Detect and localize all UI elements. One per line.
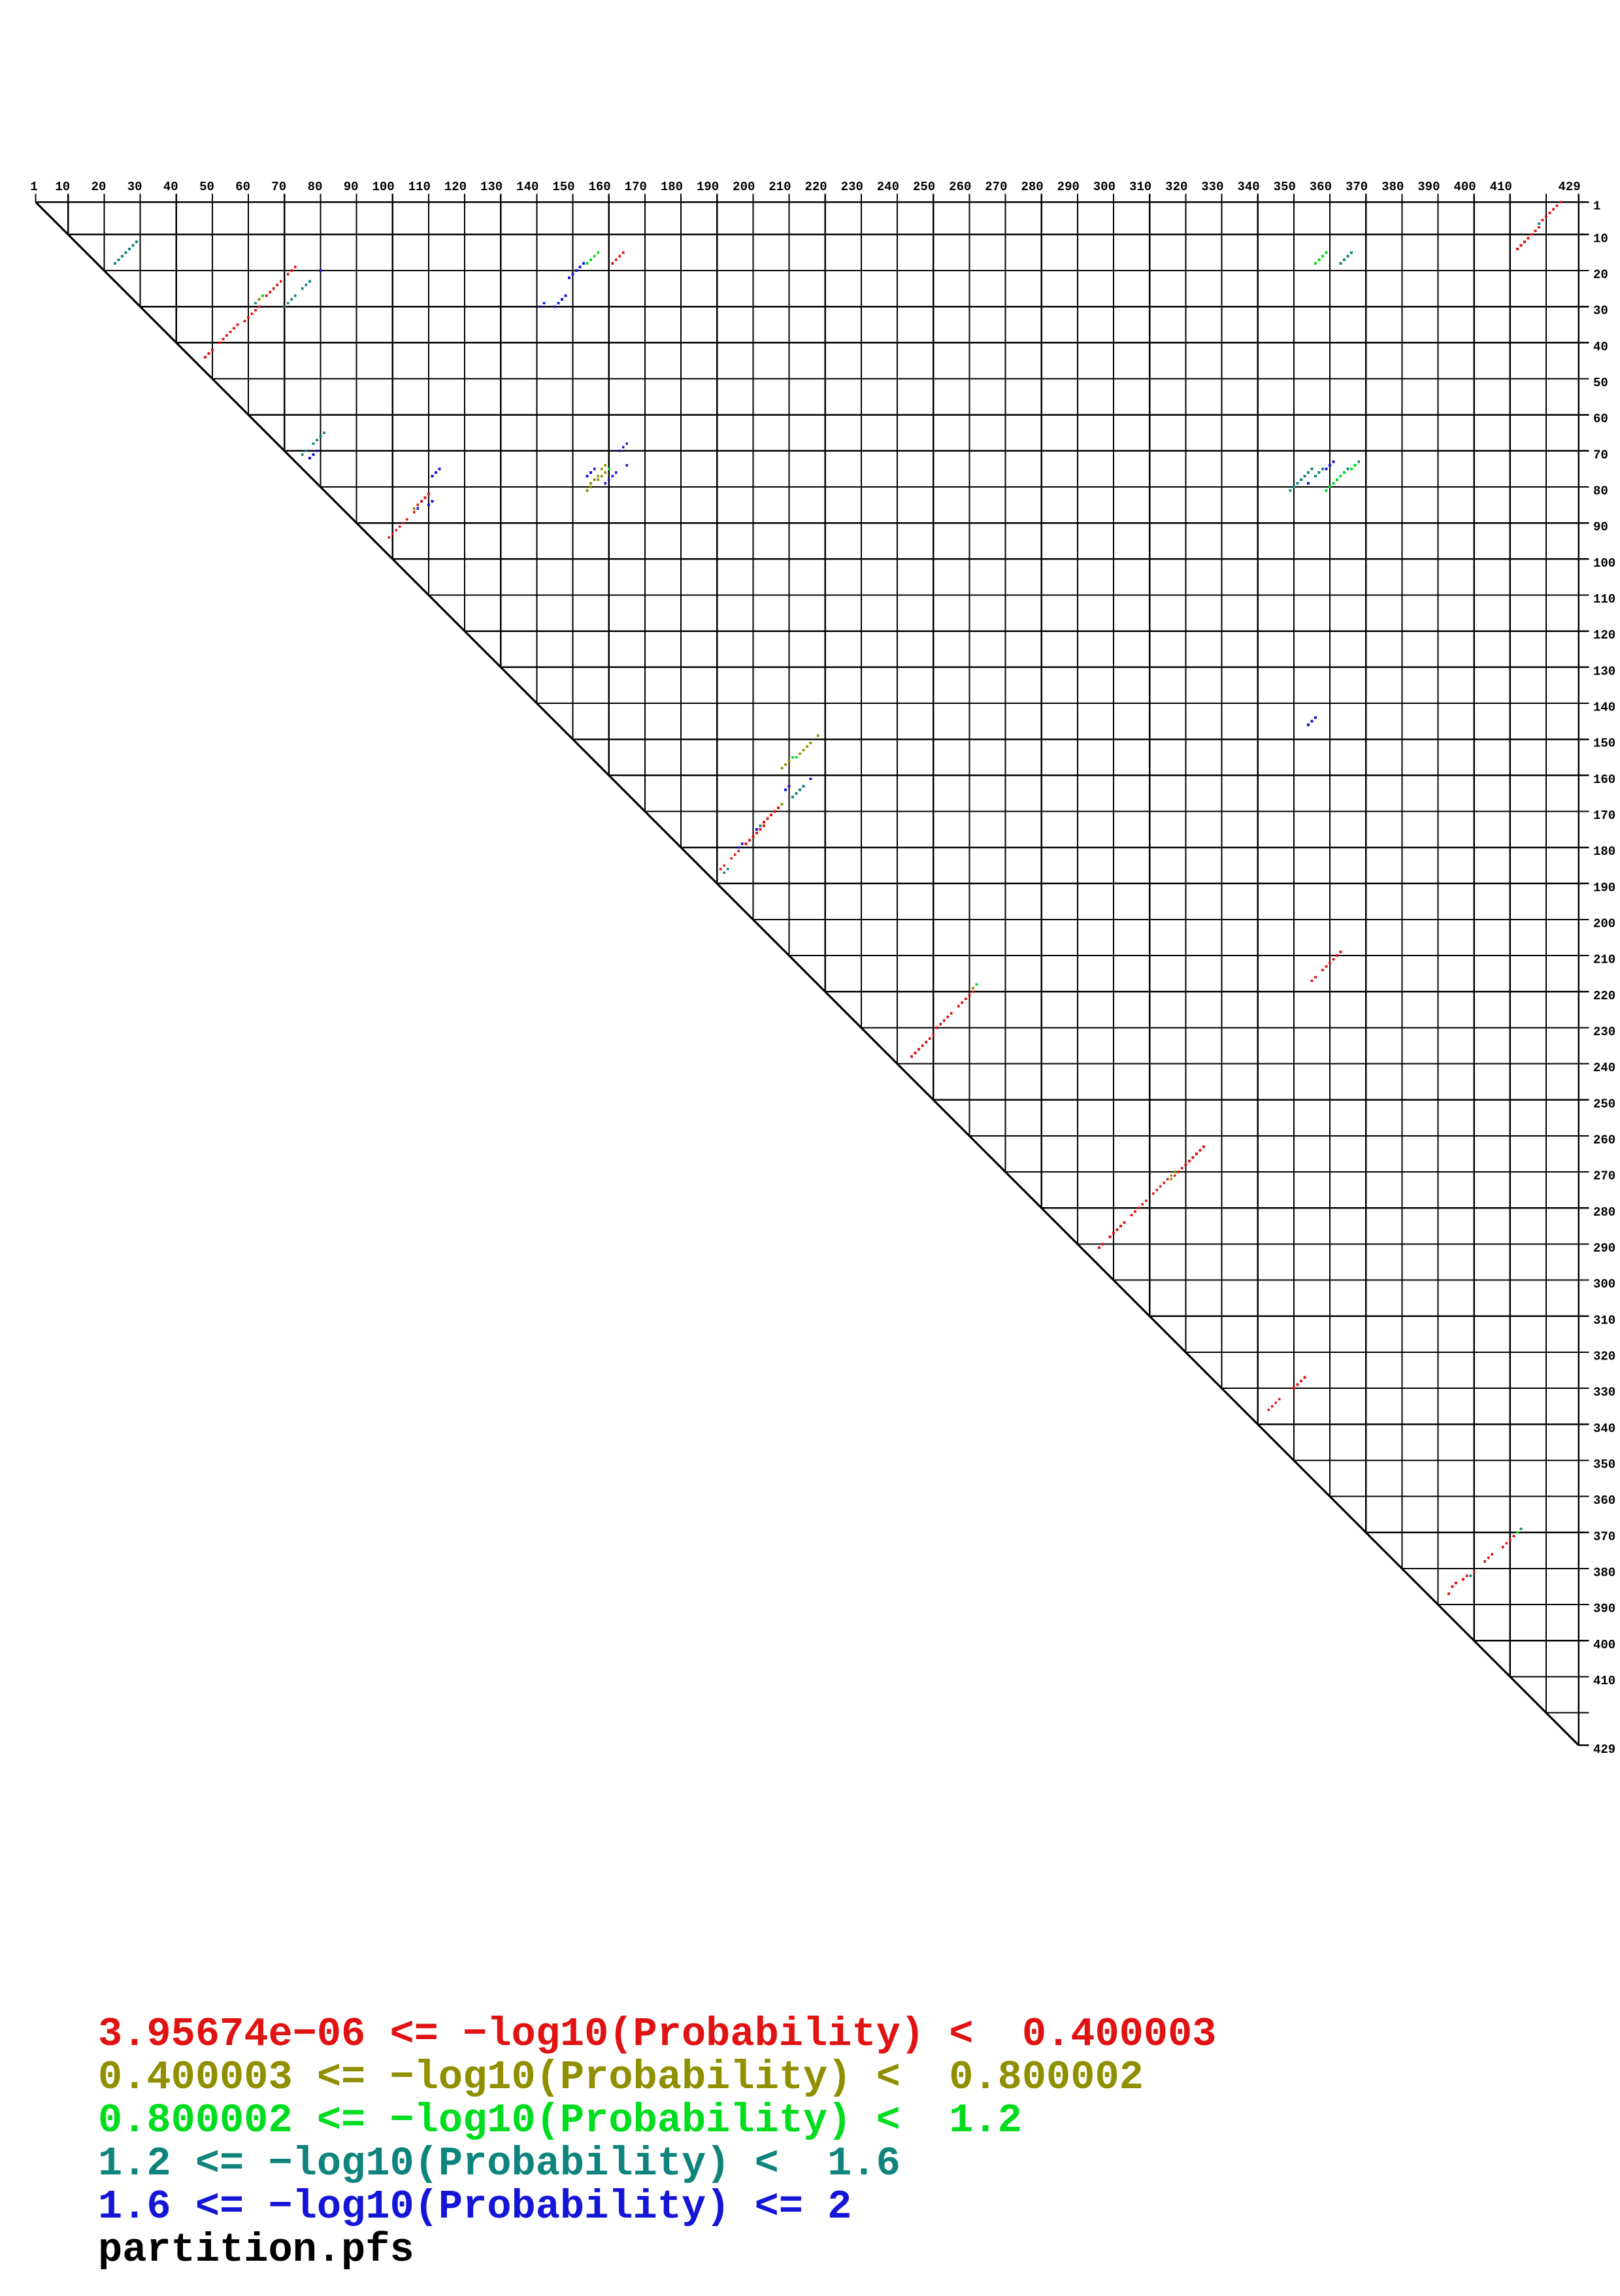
svg-text:60: 60 <box>235 180 250 194</box>
svg-text:429: 429 <box>1593 1742 1615 1757</box>
svg-text:170: 170 <box>625 180 647 194</box>
svg-text:100: 100 <box>372 180 394 194</box>
svg-text:220: 220 <box>1593 989 1615 1003</box>
svg-text:130: 130 <box>1593 664 1615 678</box>
svg-text:200: 200 <box>733 180 755 194</box>
svg-text:240: 240 <box>1593 1061 1615 1075</box>
svg-text:390: 390 <box>1593 1602 1615 1616</box>
svg-text:310: 310 <box>1129 180 1151 194</box>
svg-text:240: 240 <box>877 180 899 194</box>
svg-text:330: 330 <box>1593 1386 1615 1400</box>
svg-text:340: 340 <box>1593 1422 1615 1436</box>
svg-text:210: 210 <box>1593 953 1615 967</box>
svg-text:60: 60 <box>1593 412 1608 426</box>
svg-text:210: 210 <box>769 180 791 194</box>
svg-text:140: 140 <box>516 180 538 194</box>
svg-text:180: 180 <box>1593 844 1615 859</box>
svg-text:20: 20 <box>1593 268 1608 282</box>
svg-text:280: 280 <box>1021 180 1043 194</box>
svg-text:160: 160 <box>588 180 610 194</box>
svg-text:110: 110 <box>1593 592 1615 607</box>
svg-text:350: 350 <box>1274 180 1296 194</box>
svg-text:150: 150 <box>552 180 574 194</box>
svg-text:380: 380 <box>1593 1566 1615 1580</box>
svg-text:partition.pfs: partition.pfs <box>98 2227 414 2273</box>
svg-text:50: 50 <box>1593 376 1608 390</box>
svg-text:230: 230 <box>841 180 863 194</box>
svg-text:320: 320 <box>1165 180 1187 194</box>
svg-text:10: 10 <box>1593 231 1608 246</box>
svg-text:400: 400 <box>1593 1638 1615 1652</box>
svg-text:20: 20 <box>91 180 107 194</box>
svg-text:140: 140 <box>1593 701 1615 715</box>
svg-text:120: 120 <box>1593 628 1615 642</box>
svg-text:300: 300 <box>1093 180 1116 194</box>
svg-text:1.6 <= −log10(Probability) <=: 1.6 <= −log10(Probability) <= 2 <box>98 2184 851 2230</box>
svg-text:80: 80 <box>308 180 323 194</box>
svg-text:30: 30 <box>127 180 142 194</box>
svg-text:270: 270 <box>985 180 1007 194</box>
svg-text:180: 180 <box>661 180 683 194</box>
svg-text:1: 1 <box>30 180 37 194</box>
svg-text:190: 190 <box>1593 880 1615 895</box>
svg-text:260: 260 <box>1593 1133 1615 1148</box>
svg-text:100: 100 <box>1593 556 1615 571</box>
svg-text:320: 320 <box>1593 1350 1615 1364</box>
svg-text:170: 170 <box>1593 808 1615 823</box>
svg-text:250: 250 <box>1593 1097 1615 1111</box>
svg-text:110: 110 <box>408 180 431 194</box>
svg-text:370: 370 <box>1593 1529 1615 1544</box>
svg-text:360: 360 <box>1593 1493 1615 1508</box>
svg-text:250: 250 <box>913 180 935 194</box>
svg-text:370: 370 <box>1346 180 1368 194</box>
svg-text:230: 230 <box>1593 1025 1615 1039</box>
svg-text:410: 410 <box>1593 1674 1615 1688</box>
svg-text:70: 70 <box>1593 448 1608 462</box>
svg-text:150: 150 <box>1593 737 1615 751</box>
svg-text:280: 280 <box>1593 1205 1615 1220</box>
svg-text:30: 30 <box>1593 304 1608 318</box>
svg-text:10: 10 <box>55 180 70 194</box>
svg-text:80: 80 <box>1593 484 1608 499</box>
svg-text:260: 260 <box>949 180 971 194</box>
svg-text:290: 290 <box>1057 180 1080 194</box>
svg-text:380: 380 <box>1381 180 1404 194</box>
svg-text:3.95674e−06 <= −log10(Probabil: 3.95674e−06 <= −log10(Probability) < 0.4… <box>98 2011 1216 2057</box>
svg-text:270: 270 <box>1593 1169 1615 1184</box>
svg-text:70: 70 <box>271 180 286 194</box>
svg-text:0.800002 <= −log10(Probability: 0.800002 <= −log10(Probability) < 1.2 <box>98 2097 1022 2144</box>
svg-text:190: 190 <box>697 180 719 194</box>
svg-text:1.2 <= −log10(Probability) <: 1.2 <= −log10(Probability) < 1.6 <box>98 2140 901 2187</box>
svg-text:120: 120 <box>444 180 467 194</box>
svg-text:340: 340 <box>1237 180 1259 194</box>
svg-text:330: 330 <box>1201 180 1223 194</box>
svg-text:310: 310 <box>1593 1313 1615 1327</box>
svg-text:40: 40 <box>163 180 178 194</box>
svg-text:429: 429 <box>1558 180 1580 194</box>
svg-text:40: 40 <box>1593 340 1608 354</box>
svg-text:300: 300 <box>1593 1277 1615 1291</box>
svg-text:90: 90 <box>1593 520 1608 535</box>
svg-text:50: 50 <box>199 180 214 194</box>
svg-text:390: 390 <box>1417 180 1440 194</box>
svg-text:130: 130 <box>480 180 503 194</box>
svg-text:200: 200 <box>1593 917 1615 931</box>
svg-text:350: 350 <box>1593 1457 1615 1472</box>
svg-text:290: 290 <box>1593 1241 1615 1256</box>
svg-text:220: 220 <box>804 180 827 194</box>
svg-text:400: 400 <box>1453 180 1476 194</box>
svg-text:90: 90 <box>344 180 359 194</box>
svg-text:1: 1 <box>1593 199 1600 214</box>
svg-text:160: 160 <box>1593 773 1615 787</box>
svg-text:410: 410 <box>1490 180 1512 194</box>
svg-text:360: 360 <box>1310 180 1332 194</box>
svg-text:0.400003 <= −log10(Probability: 0.400003 <= −log10(Probability) < 0.8000… <box>98 2054 1144 2101</box>
